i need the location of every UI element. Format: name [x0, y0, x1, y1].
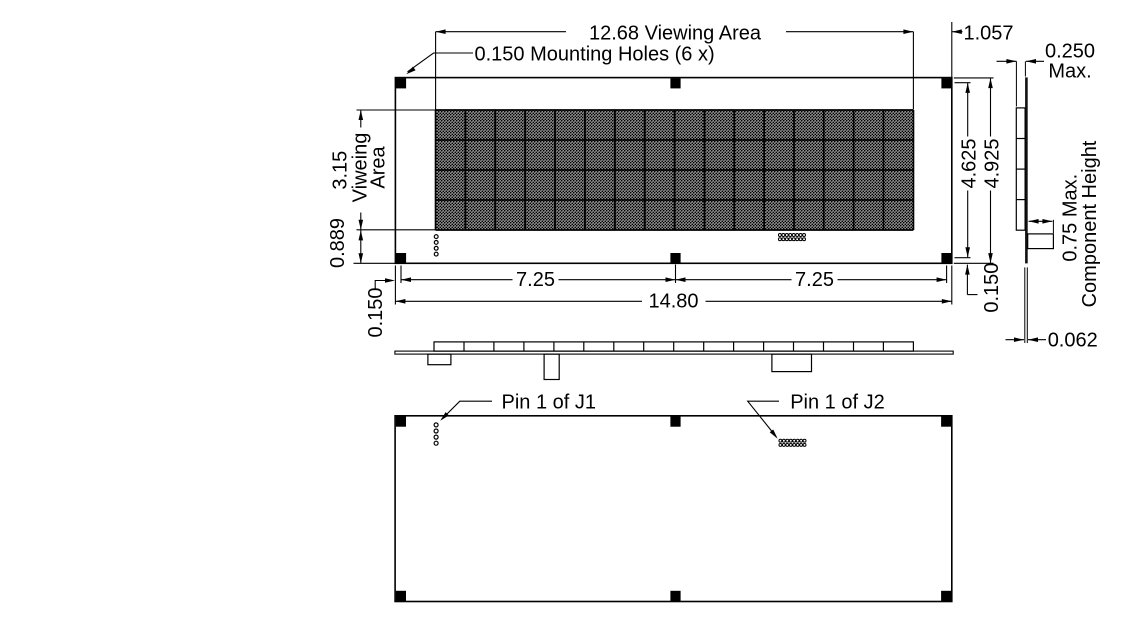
- svg-text:1.057: 1.057: [964, 23, 1014, 45]
- svg-text:7.25: 7.25: [795, 269, 834, 291]
- svg-text:12.68 Viewing Area: 12.68 Viewing Area: [589, 23, 762, 45]
- svg-text:0.889: 0.889: [327, 218, 349, 268]
- svg-text:Pin 1 of J2: Pin 1 of J2: [790, 391, 885, 413]
- svg-text:4.925: 4.925: [982, 138, 1004, 188]
- svg-text:Max.: Max.: [1048, 60, 1091, 82]
- svg-text:0.150: 0.150: [981, 263, 1003, 313]
- svg-text:0.250: 0.250: [1045, 40, 1095, 62]
- svg-text:0.150 Mounting Holes (6 x): 0.150 Mounting Holes (6 x): [475, 44, 715, 66]
- svg-text:7.25: 7.25: [516, 269, 555, 291]
- svg-text:Component Height: Component Height: [1079, 140, 1101, 307]
- svg-text:14.80: 14.80: [648, 291, 698, 313]
- svg-text:4.625: 4.625: [958, 138, 980, 188]
- svg-text:0.150: 0.150: [365, 287, 387, 337]
- svg-text:Pin 1 of J1: Pin 1 of J1: [502, 391, 597, 413]
- svg-text:0.062: 0.062: [1048, 329, 1098, 351]
- svg-text:Area: Area: [367, 146, 389, 189]
- svg-text:3.15: 3.15: [329, 151, 351, 190]
